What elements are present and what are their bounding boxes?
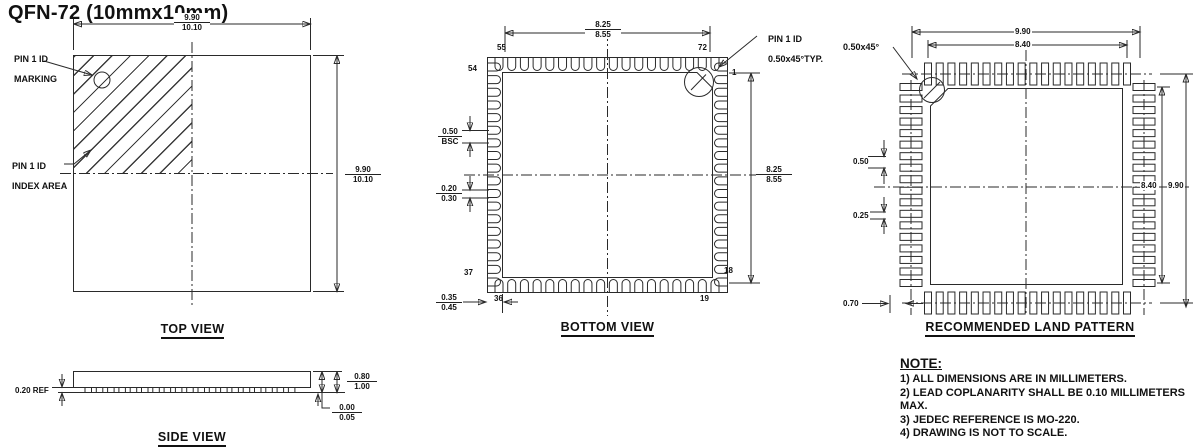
pin-label-72: 72	[698, 43, 707, 52]
land-inner-h-dim: 8.40	[1140, 181, 1158, 190]
pin1-marking-callout: PIN 1 ID MARKING	[4, 44, 57, 94]
side-body-height-dim: 0.80 1.00	[347, 372, 377, 391]
pin-label-36: 36	[494, 294, 503, 303]
bottom-lead-width-dim: 0.20 0.30	[436, 184, 462, 203]
top-view-title: TOP VIEW	[130, 322, 255, 336]
bottom-lead-length-dim: 0.35 0.45	[436, 293, 462, 312]
note-item-2: 2) LEAD COPLANARITY SHALL BE 0.10 MILLIM…	[900, 387, 1200, 414]
pin1-index-callout-line2: INDEX AREA	[12, 181, 67, 191]
note-item-1: 1) ALL DIMENSIONS ARE IN MILLIMETERS.	[900, 373, 1200, 387]
pin-label-19: 19	[700, 294, 709, 303]
side-seating-dim: 0.00 0.05	[332, 403, 362, 422]
bottom-pin1-callout-line2: 0.50x45°TYP.	[768, 54, 823, 64]
land-pattern-title: RECOMMENDED LAND PATTERN	[905, 320, 1155, 334]
land-pad-length-dim: 0.70	[842, 299, 860, 308]
bottom-span-v-dim: 8.25 8.55	[756, 165, 792, 184]
bottom-view-title: BOTTOM VIEW	[540, 320, 675, 334]
bottom-pin1-callout-line1: PIN 1 ID	[768, 34, 802, 44]
land-outer-w-dim: 9.90	[1014, 27, 1032, 36]
pin1-chamfer-line	[691, 75, 706, 91]
bottom-pin1-callout: PIN 1 ID 0.50x45°TYP.	[758, 24, 823, 74]
pin1-index-callout-line1: PIN 1 ID	[12, 161, 46, 171]
top-width-dim: 9.90 10.10	[174, 13, 210, 32]
generated-pins-and-pads	[85, 58, 1155, 393]
pin-label-37: 37	[464, 268, 473, 277]
pin-label-54: 54	[468, 64, 477, 73]
land-pitch-dim: 0.50	[852, 157, 870, 166]
bottom-pitch-dim: 0.50 BSC	[438, 127, 462, 146]
top-height-dim: 9.90 10.10	[345, 165, 381, 184]
notes-block: NOTE: 1) ALL DIMENSIONS ARE IN MILLIMETE…	[900, 356, 1200, 441]
pin1-marking-circle	[94, 72, 110, 88]
pin-label-18: 18	[724, 266, 733, 275]
pin1-marking-callout-line1: PIN 1 ID	[14, 54, 48, 64]
notes-heading: NOTE:	[900, 356, 1200, 371]
pin1-index-callout: PIN 1 ID INDEX AREA	[2, 151, 67, 201]
land-outer-h-dim: 9.90	[1167, 181, 1185, 190]
note-item-3: 3) JEDEC REFERENCE IS MO-220.	[900, 414, 1200, 428]
pin-label-55: 55	[497, 43, 506, 52]
top-view-linework	[44, 18, 344, 307]
pin-label-1: 1	[732, 68, 736, 77]
package-drawing: QFN-72 (10mmx10mm) PIN 1 ID MARKING PIN …	[0, 0, 1200, 448]
side-view-title: SIDE VIEW	[132, 430, 252, 444]
side-standoff-dim: 0.20 REF	[14, 386, 50, 395]
bottom-pin1-leader	[719, 36, 757, 67]
note-item-4: 4) DRAWING IS NOT TO SCALE.	[900, 427, 1200, 441]
land-inner-w-dim: 8.40	[1014, 40, 1032, 49]
pin1-index-leader	[64, 150, 91, 164]
bottom-span-h-dim: 8.25 8.55	[585, 20, 621, 39]
land-chamfer-callout: 0.50x45°	[843, 42, 879, 52]
pin1-marking-callout-line2: MARKING	[14, 74, 57, 84]
side-view-body-outline	[74, 372, 311, 388]
land-pad-width-dim: 0.25	[852, 211, 870, 220]
